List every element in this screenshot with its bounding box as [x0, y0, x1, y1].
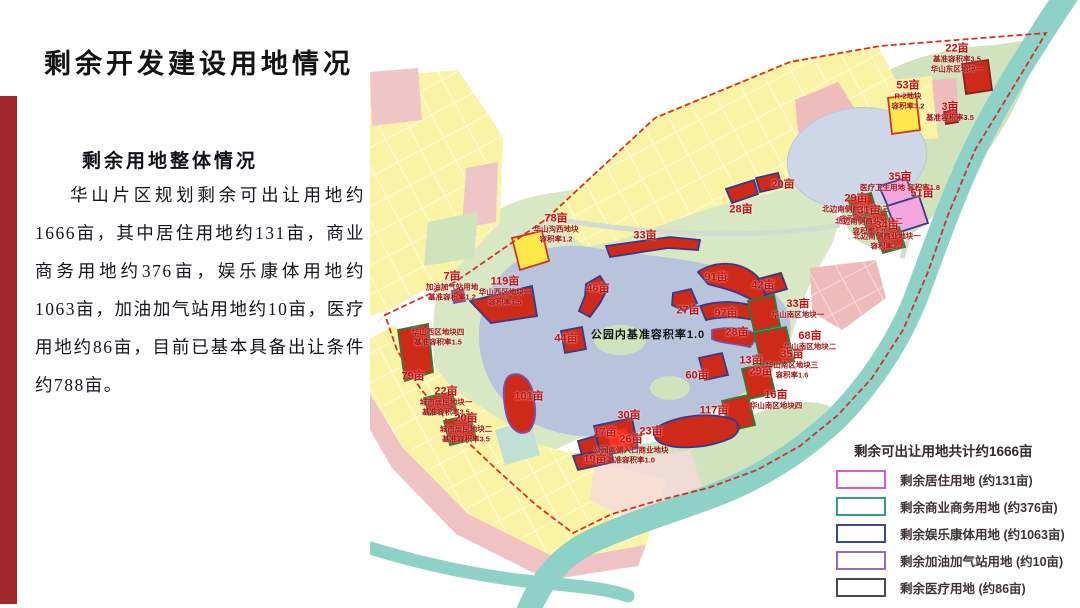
- legend-title: 剩余可出让用地共计约1666亩: [854, 440, 1078, 460]
- legend-item: 剩余商业商务用地 (约376亩): [836, 497, 1078, 515]
- legend-item-label: 剩余娱乐康体用地 (约1063亩): [900, 524, 1065, 543]
- legend-item: 剩余医疗用地 (约86亩): [836, 578, 1078, 596]
- legend-item: 剩余加油加气站用地 (约10亩): [836, 551, 1078, 569]
- legend-swatch: [836, 470, 886, 489]
- legend-item-label: 剩余加油加气站用地 (约10亩): [900, 551, 1063, 570]
- slide-page: 剩余开发建设用地情况 剩余用地整体情况 华山片区规划剩余可出让用地约1666亩，…: [0, 0, 1080, 608]
- map-legend: 剩余可出让用地共计约1666亩 剩余居住用地 (约131亩) 剩余商业商务用地 …: [836, 440, 1078, 605]
- section-subtitle: 剩余用地整体情况: [82, 146, 258, 173]
- left-accent-bar: [0, 96, 17, 604]
- legend-item-label: 剩余商业商务用地 (约376亩): [900, 497, 1058, 516]
- legend-item: 剩余居住用地 (约131亩): [836, 470, 1078, 488]
- legend-items: 剩余居住用地 (约131亩) 剩余商业商务用地 (约376亩) 剩余娱乐康体用地…: [836, 470, 1078, 596]
- legend-item-label: 剩余医疗用地 (约86亩): [900, 578, 1026, 597]
- slide-title: 剩余开发建设用地情况: [44, 42, 354, 81]
- legend-item-label: 剩余居住用地 (约131亩): [900, 470, 1033, 489]
- legend-swatch: [836, 524, 886, 543]
- body-paragraph: 华山片区规划剩余可出让用地约1666亩，其中居住用地约131亩，商业商务用地约3…: [35, 176, 365, 404]
- park-far-note: 公园内基准容积率1.0: [591, 326, 705, 342]
- legend-swatch: [836, 551, 886, 570]
- legend-swatch: [836, 497, 886, 516]
- legend-item: 剩余娱乐康体用地 (约1063亩): [836, 524, 1078, 542]
- legend-swatch: [836, 578, 886, 597]
